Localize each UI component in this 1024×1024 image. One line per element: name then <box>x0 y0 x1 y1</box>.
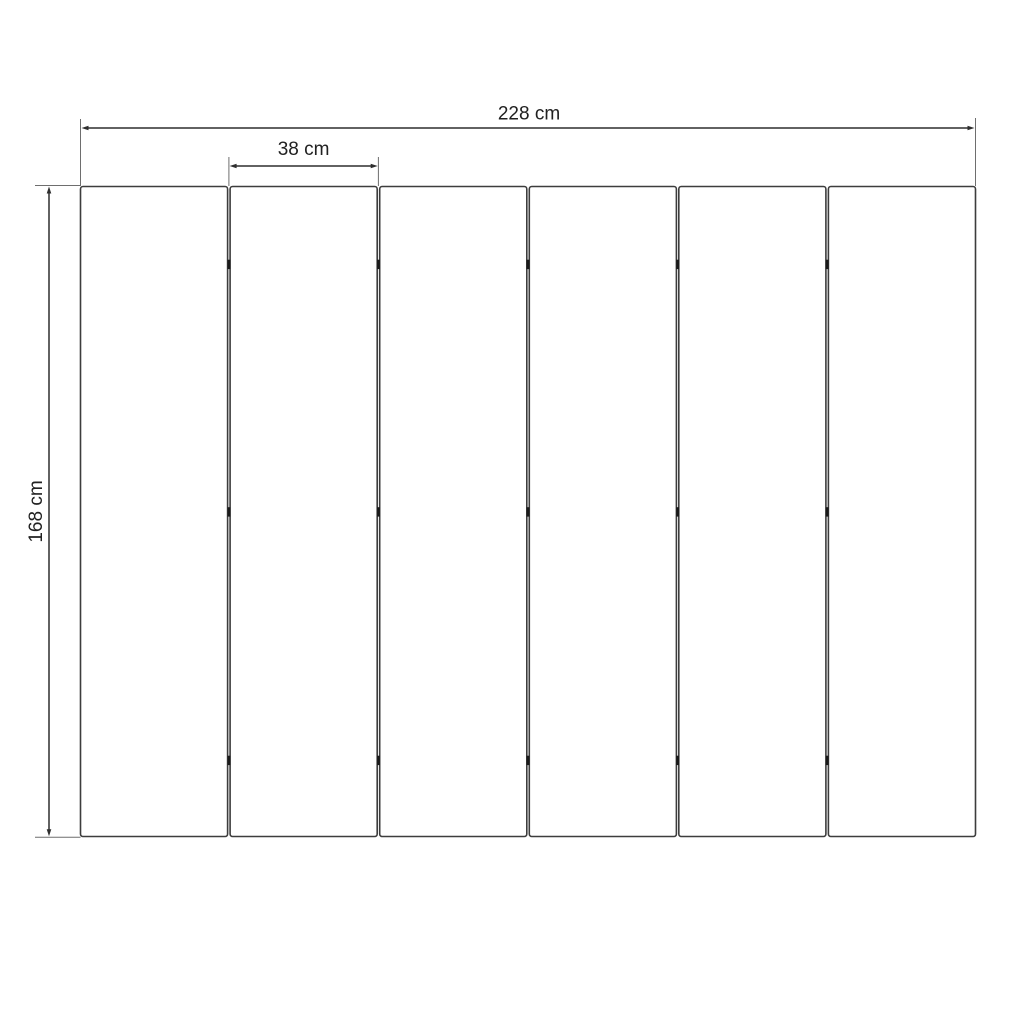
svg-text:228 cm: 228 cm <box>498 104 560 125</box>
svg-text:38 cm: 38 cm <box>278 139 330 160</box>
svg-text:168 cm: 168 cm <box>26 480 47 542</box>
